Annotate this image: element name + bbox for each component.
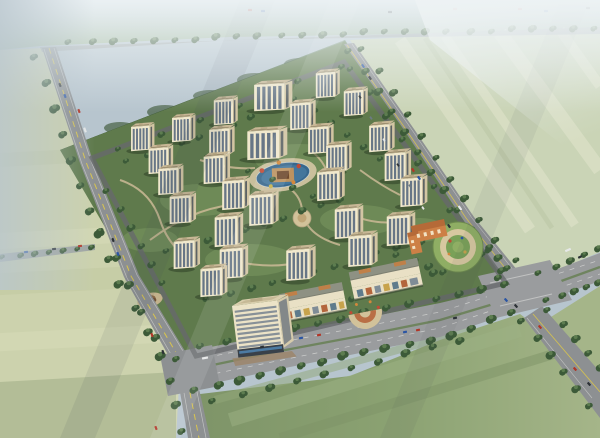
- left-haze-overlay: [0, 0, 95, 290]
- tree: [543, 307, 550, 313]
- aerial-rendering-canvas: [0, 0, 600, 438]
- masterplan-rendering: [0, 0, 600, 438]
